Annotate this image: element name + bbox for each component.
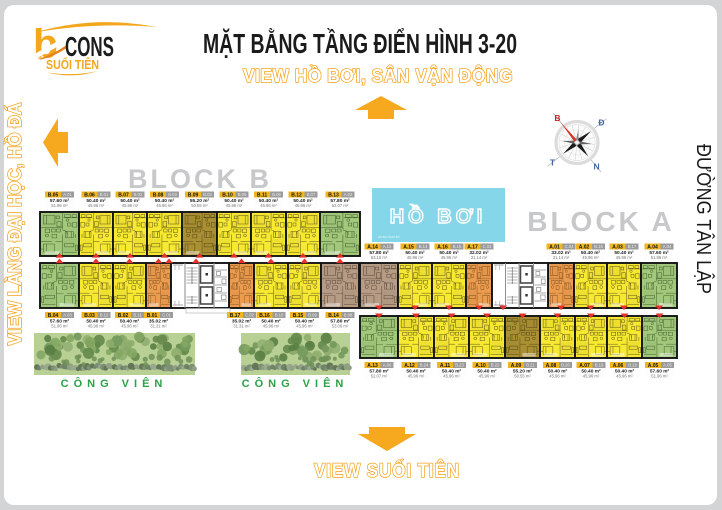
svg-text:45.96 m²: 45.96 m² — [479, 373, 496, 378]
svg-text:A.07: A.07 — [579, 363, 590, 369]
svg-text:Đ: Đ — [598, 118, 604, 128]
svg-text:A.03: A.03 — [612, 244, 623, 250]
svg-text:B.14: B.14 — [328, 313, 339, 319]
svg-text:52.07 m²: 52.07 m² — [332, 203, 349, 208]
svg-text:VIEW SUỐI TIÊN: VIEW SUỐI TIÊN — [314, 460, 460, 482]
svg-text:45.96 m²: 45.96 m² — [226, 203, 243, 208]
svg-text:B.11: B.11 — [133, 313, 142, 318]
svg-text:B: B — [554, 113, 560, 123]
svg-text:BLOCK A: BLOCK A — [527, 206, 675, 237]
svg-text:51.96 m²: 51.96 m² — [651, 255, 668, 260]
svg-text:B.02: B.02 — [134, 192, 143, 197]
svg-text:53.10 m²: 53.10 m² — [371, 255, 388, 260]
svg-text:B.04: B.04 — [48, 313, 59, 319]
svg-text:B.11: B.11 — [257, 192, 268, 198]
svg-text:A.12: A.12 — [404, 363, 415, 369]
svg-text:A.15: A.15 — [403, 244, 414, 250]
svg-text:T: T — [550, 157, 556, 167]
svg-text:45.96 m²: 45.96 m² — [441, 255, 458, 260]
svg-text:B.03: B.03 — [168, 192, 177, 197]
svg-text:VIEW HỒ BƠI, SÂN VẬN ĐỘNG: VIEW HỒ BƠI, SÂN VẬN ĐỘNG — [243, 65, 513, 86]
svg-text:45.96 m²: 45.96 m² — [443, 373, 460, 378]
svg-text:B.02: B.02 — [118, 313, 129, 319]
svg-text:B.12: B.12 — [100, 313, 109, 318]
svg-text:B.01: B.01 — [147, 313, 158, 319]
svg-text:45.96 m²: 45.96 m² — [260, 203, 277, 208]
svg-text:A.17: A.17 — [467, 244, 478, 250]
svg-text:45.96 m²: 45.96 m² — [296, 323, 313, 328]
svg-text:B.06: B.06 — [272, 192, 281, 197]
svg-text:50.55 m²: 50.55 m² — [191, 203, 208, 208]
svg-text:B.01: B.01 — [100, 192, 109, 197]
svg-text:CÔNG VIÊN: CÔNG VIÊN — [61, 377, 168, 390]
svg-text:53.06 m²: 53.06 m² — [332, 323, 349, 328]
svg-text:B.13: B.13 — [328, 192, 339, 198]
svg-text:51.96 m²: 51.96 m² — [651, 373, 668, 378]
svg-text:31.14 m²: 31.14 m² — [471, 255, 488, 260]
svg-text:B.04: B.04 — [203, 192, 212, 197]
svg-text:51.96 m²: 51.96 m² — [51, 323, 68, 328]
svg-text:A.13: A.13 — [367, 363, 378, 369]
svg-text:B.22: B.22 — [491, 363, 500, 368]
svg-text:SUỐI TIÊN: SUỐI TIÊN — [46, 57, 99, 72]
svg-text:B.08: B.08 — [344, 313, 353, 318]
svg-text:B.10: B.10 — [222, 192, 233, 198]
svg-text:C.02: C.02 — [245, 313, 255, 318]
svg-text:B.14: B.14 — [419, 244, 428, 249]
svg-text:A.16: A.16 — [437, 244, 448, 250]
svg-text:52.07 m²: 52.07 m² — [371, 373, 388, 378]
svg-text:A.10: A.10 — [475, 363, 486, 369]
svg-text:45.96 m²: 45.96 m² — [549, 373, 566, 378]
svg-text:B.08: B.08 — [153, 192, 164, 198]
svg-text:45.96 m²: 45.96 m² — [121, 323, 138, 328]
svg-text:B.23: B.23 — [455, 363, 464, 368]
svg-text:A.13: A.13 — [383, 244, 392, 249]
svg-text:B.15: B.15 — [293, 313, 304, 319]
svg-text:C.01: C.01 — [162, 313, 172, 318]
svg-text:A.05: A.05 — [663, 363, 672, 368]
svg-text:B.21: B.21 — [526, 363, 535, 368]
svg-text:ĐƯỜNG TÂN LẬP: ĐƯỜNG TÂN LẬP — [692, 144, 715, 294]
svg-text:50.55 m²: 50.55 m² — [514, 373, 531, 378]
svg-text:B.19: B.19 — [595, 363, 604, 368]
svg-text:B.20: B.20 — [561, 363, 570, 368]
svg-text:B.17: B.17 — [230, 313, 241, 319]
svg-text:BLOCK B: BLOCK B — [128, 164, 272, 194]
svg-text:B.05: B.05 — [48, 192, 59, 198]
svg-text:A.03: A.03 — [63, 313, 72, 318]
svg-text:B.16: B.16 — [259, 313, 270, 319]
svg-text:A.08: A.08 — [546, 363, 557, 369]
svg-text:A.14: A.14 — [367, 244, 378, 250]
svg-text:B.16: B.16 — [594, 244, 603, 249]
svg-text:B.07: B.07 — [118, 192, 129, 198]
svg-text:45.96 m²: 45.96 m² — [122, 203, 139, 208]
svg-text:A.01: A.01 — [549, 244, 560, 250]
svg-text:45.96 m²: 45.96 m² — [616, 255, 633, 260]
svg-text:45.96 m²: 45.96 m² — [88, 323, 105, 328]
svg-text:51.96 m²: 51.96 m² — [51, 203, 68, 208]
svg-text:B.18: B.18 — [628, 363, 637, 368]
svg-text:A.02: A.02 — [344, 192, 353, 197]
svg-text:HỒ BƠI: HỒ BƠI — [390, 204, 487, 228]
svg-text:N: N — [593, 162, 599, 172]
svg-text:45.96 m²: 45.96 m² — [407, 255, 424, 260]
svg-text:45.96 m²: 45.96 m² — [156, 203, 173, 208]
svg-text:C.04: C.04 — [565, 244, 575, 249]
svg-text:B.15: B.15 — [453, 244, 462, 249]
svg-text:MẶT BẰNG TẦNG ĐIỂN HÌNH 3-20: MẶT BẰNG TẦNG ĐIỂN HÌNH 3-20 — [203, 28, 517, 59]
svg-text:B.12: B.12 — [291, 192, 302, 198]
svg-text:31.31 m²: 31.31 m² — [150, 323, 167, 328]
svg-text:B.03: B.03 — [84, 313, 95, 319]
svg-text:B.24: B.24 — [420, 363, 429, 368]
svg-text:B.09: B.09 — [188, 192, 199, 198]
svg-text:B.09: B.09 — [308, 313, 317, 318]
svg-text:45.96 m²: 45.96 m² — [295, 203, 312, 208]
svg-text:A.04: A.04 — [663, 244, 672, 249]
svg-text:VIEW LÀNG ĐẠI HỌC, HỒ ĐÁ: VIEW LÀNG ĐẠI HỌC, HỒ ĐÁ — [4, 103, 25, 346]
svg-text:A.05: A.05 — [648, 363, 659, 369]
svg-text:C.03: C.03 — [483, 244, 493, 249]
svg-text:A.06: A.06 — [613, 363, 624, 369]
svg-text:B.07: B.07 — [307, 192, 316, 197]
svg-text:45.96 m²: 45.96 m² — [616, 373, 633, 378]
svg-text:45.96 m²: 45.96 m² — [582, 255, 599, 260]
svg-text:A.09: A.09 — [511, 363, 522, 369]
svg-text:A.11: A.11 — [440, 363, 451, 369]
svg-text:B.05: B.05 — [238, 192, 247, 197]
svg-text:A.01: A.01 — [63, 192, 72, 197]
svg-text:A.02: A.02 — [579, 244, 590, 250]
svg-text:31.31 m²: 31.31 m² — [233, 323, 250, 328]
svg-text:45.96 m²: 45.96 m² — [408, 373, 425, 378]
svg-text:31.14 m²: 31.14 m² — [553, 255, 570, 260]
svg-text:45.96 m²: 45.96 m² — [583, 373, 600, 378]
svg-text:45.96 m²: 45.96 m² — [263, 323, 280, 328]
svg-text:B.06: B.06 — [84, 192, 95, 198]
svg-text:B.10: B.10 — [275, 313, 284, 318]
svg-text:A.04: A.04 — [647, 244, 658, 250]
svg-text:B.17: B.17 — [628, 244, 637, 249]
svg-text:45.96 m²: 45.96 m² — [88, 203, 105, 208]
svg-text:A.06: A.06 — [383, 363, 392, 368]
svg-text:CÔNG VIÊN: CÔNG VIÊN — [242, 377, 349, 390]
